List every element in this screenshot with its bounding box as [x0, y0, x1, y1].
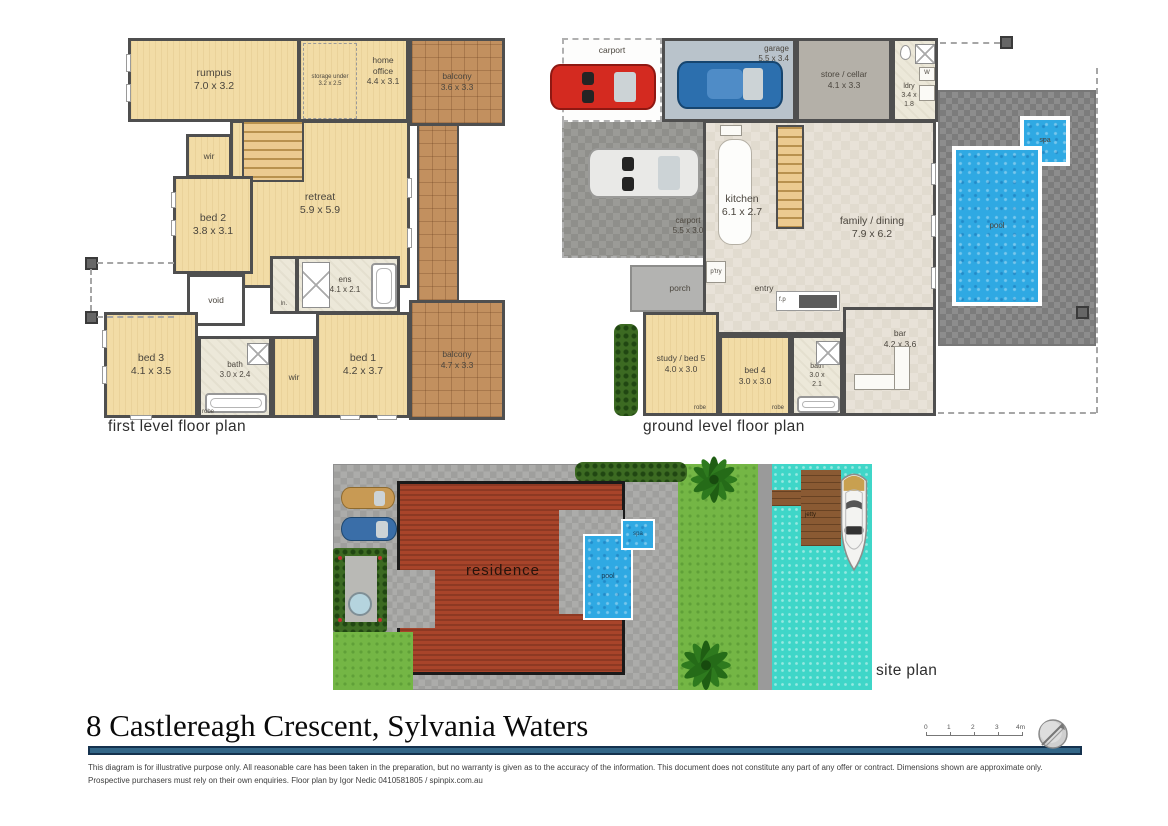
- ens-label: ens 4.1 x 2.1: [330, 275, 361, 295]
- balcony-lower: balcony 4.7 x 3.3: [409, 300, 505, 420]
- study-label: study / bed 5 4.0 x 3.0: [657, 353, 706, 374]
- room-bed1: bed 1 4.2 x 3.7: [316, 312, 410, 418]
- bathtub-icon: [797, 396, 840, 413]
- divider-bar: [88, 746, 1082, 755]
- wir-lower-label: wir: [289, 372, 300, 383]
- bath-upper-label: bath 3.0 x 2.4: [220, 360, 251, 380]
- balcony-top-label: balcony 3.6 x 3.3: [441, 71, 474, 92]
- room-home-office: storage under 3.2 x 2.5 home office 4.4 …: [298, 38, 409, 122]
- room-study-bed5: study / bed 5 4.0 x 3.0: [643, 312, 719, 416]
- palm-tree-icon: [663, 638, 749, 704]
- boundary-dash: [90, 269, 92, 311]
- boundary-dash: [97, 262, 174, 264]
- north-compass-icon: [1034, 716, 1072, 754]
- carport-front: carport 5.5 x 3.0: [562, 122, 724, 258]
- scale-tick-label: 1: [947, 724, 951, 731]
- site-spa-label: spa: [633, 531, 643, 539]
- window: [102, 330, 107, 348]
- property-address-title: 8 Castlereagh Crescent, Sylvania Waters: [86, 708, 588, 744]
- window: [377, 415, 397, 420]
- boat: [835, 466, 873, 574]
- ground-level-caption: ground level floor plan: [643, 418, 805, 436]
- pantry-cupboard: [706, 261, 726, 283]
- scale-tick-label: 3: [995, 724, 999, 731]
- boundary-dash: [97, 316, 174, 318]
- pool: pool: [952, 146, 1042, 306]
- site-pool-label: pool: [601, 573, 614, 582]
- site-grass-front: [333, 632, 413, 690]
- room-wir-upper: wir: [186, 134, 232, 178]
- scale-bar: 0 1 2 3 4m: [924, 724, 1028, 740]
- fireplace: f.p: [776, 291, 840, 311]
- home-office-label: home office 4.4 x 3.1: [357, 55, 409, 87]
- room-ens: ens 4.1 x 2.1: [296, 256, 400, 314]
- first-level-floor-plan: balcony 3.6 x 3.3 balcony 4.7 x 3.3 retr…: [85, 28, 507, 442]
- bed4-label: bed 4 3.0 x 3.0: [739, 365, 772, 386]
- fountain: [348, 592, 372, 616]
- window: [171, 192, 176, 208]
- living-block: kitchen 6.1 x 2.7 family / dining 7.9 x …: [703, 120, 936, 335]
- window: [102, 366, 107, 384]
- store-cellar: store / cellar 4.1 x 3.3: [796, 38, 892, 122]
- boundary-dash: [1096, 68, 1098, 413]
- carport-rear: carport: [562, 38, 662, 122]
- first-level-caption: first level floor plan: [108, 418, 246, 436]
- side-path: [758, 464, 772, 690]
- site-car-blue: [341, 517, 397, 541]
- bath-ground-label: bath 3.0 x 2.1: [809, 363, 824, 389]
- window: [171, 220, 176, 236]
- linen-label: ln.: [281, 301, 287, 309]
- shower-icon: [247, 343, 269, 365]
- porch-label: porch: [669, 283, 690, 294]
- window: [931, 163, 936, 185]
- bed1-label: bed 1 4.2 x 3.7: [343, 352, 383, 378]
- room-bath-upper: bath 3.0 x 2.4 robe: [198, 336, 272, 418]
- stairs-ground: [776, 125, 804, 229]
- jetty-walkway: [772, 490, 804, 506]
- white-car: [588, 148, 700, 198]
- laundry-tub-icon: [919, 85, 935, 101]
- palm-tree-icon: [675, 454, 753, 516]
- shower-icon: [816, 341, 840, 365]
- disclaimer-text: This diagram is for illustrative purpose…: [88, 762, 1084, 788]
- garden-bed: [614, 324, 638, 416]
- site-car-tan: [341, 487, 395, 509]
- scale-tick-label: 2: [971, 724, 975, 731]
- site-spa: spa: [621, 519, 655, 550]
- bed2-label: bed 2 3.8 x 3.1: [193, 212, 233, 238]
- fireplace-label: f.p: [779, 297, 786, 305]
- rumpus-label: rumpus 7.0 x 3.2: [194, 67, 234, 93]
- stairs-upper: [242, 120, 304, 182]
- window: [407, 178, 412, 198]
- window: [340, 415, 360, 420]
- bathtub-icon: [371, 263, 397, 309]
- room-bed3: bed 3 4.1 x 3.5: [104, 312, 198, 418]
- room-bar: bar 4.2 x 3.6: [843, 307, 936, 416]
- balcony-side-strip: [417, 124, 459, 302]
- void-label: void: [208, 295, 224, 306]
- store-label: store / cellar 4.1 x 3.3: [821, 69, 867, 90]
- boundary-post: [1076, 306, 1089, 319]
- bathtub-icon: [205, 393, 267, 413]
- window: [931, 267, 936, 289]
- cooktop-icon: [720, 125, 742, 136]
- toilet-icon: [900, 45, 911, 60]
- pool-terrace: spa pool: [938, 90, 1096, 346]
- roof-notch: [397, 570, 435, 628]
- room-bed4: bed 4 3.0 x 3.0: [719, 335, 791, 416]
- pool-label: pool: [989, 221, 1004, 231]
- storage-under-area: storage under 3.2 x 2.5: [303, 43, 357, 119]
- washer-icon: W: [919, 67, 935, 81]
- room-rumpus: rumpus 7.0 x 3.2: [128, 38, 300, 122]
- site-plan-caption: site plan: [876, 662, 937, 680]
- carport-rear-label: carport: [564, 45, 660, 56]
- site-plan: pool spa residence jetty: [333, 462, 874, 694]
- boundary-dash: [938, 412, 1096, 414]
- bed3-label: bed 3 4.1 x 3.5: [131, 352, 171, 378]
- floorplan-document: balcony 3.6 x 3.3 balcony 4.7 x 3.3 retr…: [0, 0, 1168, 826]
- garage: garage 5.5 x 3.4: [662, 38, 796, 122]
- room-linen: ln.: [270, 256, 298, 314]
- red-car: [550, 64, 656, 110]
- window: [126, 54, 131, 72]
- shower-icon: [302, 262, 330, 308]
- shower-icon: [915, 44, 935, 64]
- kitchen-island: [718, 139, 752, 245]
- room-bath-ground: bath 3.0 x 2.1: [791, 335, 843, 416]
- scale-tick-label: 4m: [1016, 724, 1025, 731]
- retreat-label: retreat 5.9 x 5.9: [300, 191, 340, 217]
- scale-tick-label: 0: [924, 724, 928, 731]
- hedge-row: [575, 462, 687, 482]
- window: [407, 228, 412, 248]
- spa-label: spa: [1039, 137, 1050, 146]
- formal-garden: [333, 548, 387, 632]
- wir-upper-label: wir: [204, 151, 215, 162]
- bar-counter: [894, 346, 910, 390]
- room-wir-lower: wir: [272, 336, 316, 418]
- blue-car: [677, 61, 783, 109]
- storage-label: storage under 3.2 x 2.5: [311, 74, 348, 89]
- family-label: family / dining 7.9 x 6.2: [808, 215, 936, 241]
- window: [126, 84, 131, 102]
- boundary-post: [1000, 36, 1013, 49]
- laundry: W ldry 3.4 x 1.8: [892, 38, 938, 122]
- ground-level-floor-plan: spa pool carport garage 5.5 x 3.4: [548, 28, 1108, 442]
- balcony-lower-label: balcony 4.7 x 3.3: [441, 349, 474, 370]
- window: [931, 215, 936, 237]
- boundary-dash: [940, 42, 1000, 44]
- room-bed2: bed 2 3.8 x 3.1: [173, 176, 253, 274]
- balcony-top: balcony 3.6 x 3.3: [409, 38, 505, 126]
- washer-label: W: [924, 70, 930, 78]
